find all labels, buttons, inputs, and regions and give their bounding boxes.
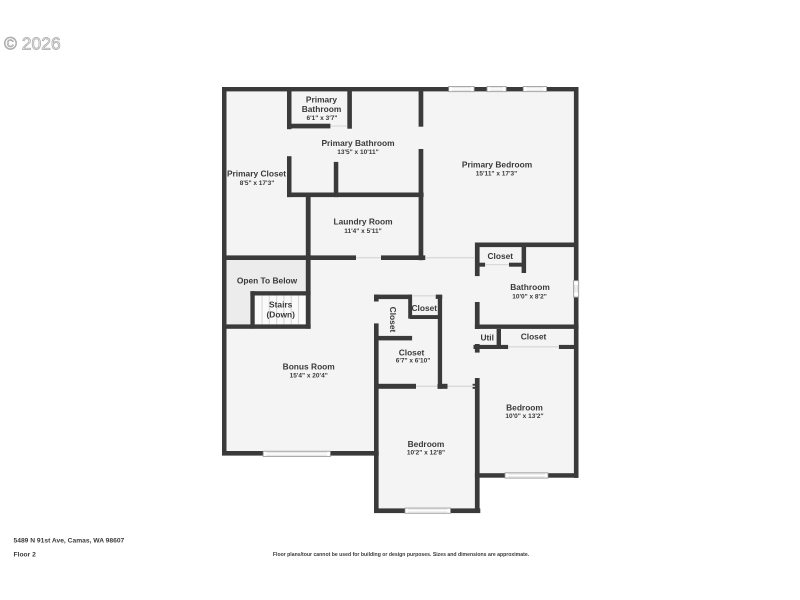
svg-text:10'0" x 8'2": 10'0" x 8'2" <box>512 293 547 300</box>
svg-text:© 2026: © 2026 <box>4 34 61 54</box>
svg-text:Floor 2: Floor 2 <box>14 552 37 559</box>
svg-text:Closet: Closet <box>521 331 547 341</box>
svg-text:10'0" x 13'2": 10'0" x 13'2" <box>505 413 543 420</box>
svg-text:Stairs: Stairs <box>269 300 293 310</box>
svg-text:Bathroom: Bathroom <box>302 104 342 114</box>
svg-text:Floor plans/tour cannot be use: Floor plans/tour cannot be used for buil… <box>273 552 530 558</box>
svg-text:Primary Bathroom: Primary Bathroom <box>321 138 394 148</box>
svg-text:Bonus Room: Bonus Room <box>283 361 335 371</box>
svg-text:5489 N 91st Ave, Camas, WA 986: 5489 N 91st Ave, Camas, WA 98607 <box>14 538 125 545</box>
svg-text:Laundry Room: Laundry Room <box>333 217 392 227</box>
svg-text:Primary Closet: Primary Closet <box>227 169 286 179</box>
svg-text:6'1" x 3'7": 6'1" x 3'7" <box>307 115 338 122</box>
svg-text:13'5" x 10'11": 13'5" x 10'11" <box>337 149 378 156</box>
svg-text:Bathroom: Bathroom <box>510 282 550 292</box>
svg-text:8'5" x 17'3": 8'5" x 17'3" <box>240 180 275 187</box>
svg-text:11'4" x 5'11": 11'4" x 5'11" <box>344 228 381 235</box>
svg-text:Bedroom: Bedroom <box>506 402 543 412</box>
svg-text:Closet: Closet <box>411 303 437 313</box>
svg-text:6'7" x 6'10": 6'7" x 6'10" <box>396 358 431 365</box>
svg-text:Closet: Closet <box>487 251 513 261</box>
svg-text:Bedroom: Bedroom <box>408 439 445 449</box>
svg-text:Closet: Closet <box>388 307 398 333</box>
svg-text:Primary Bedroom: Primary Bedroom <box>462 160 532 170</box>
svg-text:Primary: Primary <box>306 95 338 105</box>
svg-text:Closet: Closet <box>399 347 425 357</box>
svg-text:10'2" x 12'8": 10'2" x 12'8" <box>407 449 445 456</box>
svg-text:15'4" x 20'4": 15'4" x 20'4" <box>290 373 328 380</box>
svg-text:Open To Below: Open To Below <box>237 276 298 286</box>
svg-text:15'11" x 17'3": 15'11" x 17'3" <box>476 171 517 178</box>
svg-text:Util: Util <box>480 333 494 343</box>
svg-text:(Down): (Down) <box>267 309 296 319</box>
